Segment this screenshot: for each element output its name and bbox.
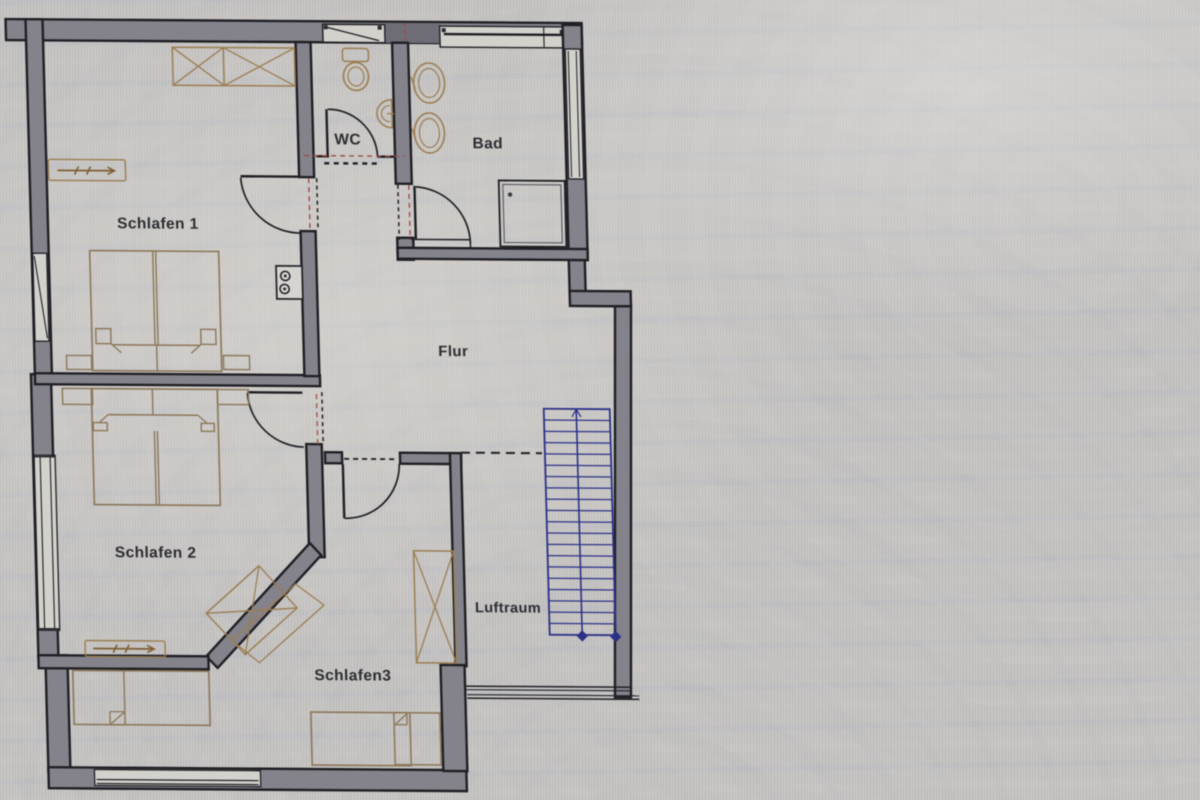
svg-text:WC: WC	[334, 131, 361, 148]
svg-text:Schlafen 1: Schlafen 1	[117, 215, 199, 233]
svg-text:Bad: Bad	[472, 135, 503, 152]
svg-text:Schlafen3: Schlafen3	[314, 667, 391, 685]
svg-text:Flur: Flur	[438, 343, 468, 360]
svg-text:Schlafen 2: Schlafen 2	[115, 544, 197, 562]
svg-text:Luftraum: Luftraum	[475, 600, 541, 616]
